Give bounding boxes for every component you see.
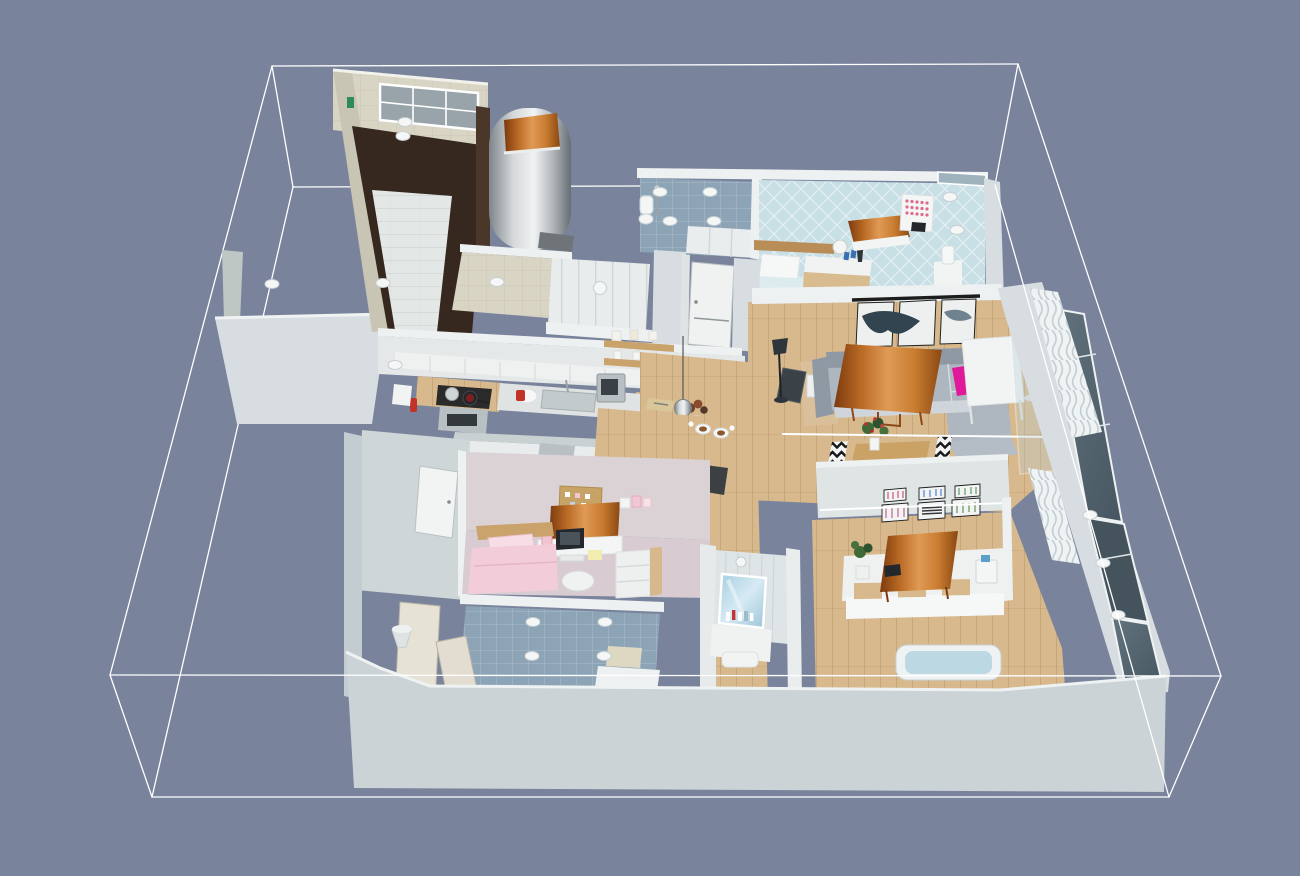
desk-chair <box>562 571 594 591</box>
bathroom-cabinets <box>686 226 756 258</box>
ceiling-lamp <box>396 132 410 141</box>
ceiling-lamp <box>525 652 539 661</box>
ceiling-lamp <box>707 217 721 226</box>
pink-bed <box>468 522 558 594</box>
ceiling-lamp <box>703 188 717 197</box>
sink <box>541 390 596 412</box>
laptop <box>884 564 901 577</box>
tiled-nook-floor <box>452 252 556 318</box>
ceiling-lamp <box>950 226 964 235</box>
floor-plan-3d-viewport[interactable] <box>0 0 1300 876</box>
entry-brown-wall-edge <box>476 106 490 250</box>
bedroom-back-window <box>938 172 986 186</box>
ceiling-lamp <box>490 278 504 287</box>
fire-extinguisher <box>410 398 417 412</box>
exit-sign <box>347 97 354 108</box>
ceiling-lamp <box>598 618 612 627</box>
ceiling-lamp <box>653 188 667 197</box>
triptych-art <box>856 299 976 347</box>
wall-lamp <box>736 557 746 567</box>
drawer-unit <box>616 547 662 598</box>
keyboard <box>560 555 584 561</box>
red-kettle <box>516 390 525 401</box>
ceiling-lamp <box>943 193 957 202</box>
scene-canvas <box>0 0 1300 876</box>
round-metal-cabin <box>489 108 571 250</box>
bath-mat <box>606 646 642 668</box>
ceiling-lamp <box>597 652 611 661</box>
ceiling-lamp <box>398 118 412 127</box>
notepad <box>588 550 602 560</box>
ceiling-lamp <box>376 279 390 288</box>
toilet <box>640 196 653 214</box>
bath-mat-small <box>722 652 758 667</box>
kids-bedroom <box>458 450 710 598</box>
ceiling-lamp <box>526 618 540 627</box>
polka-dot-art <box>900 194 934 232</box>
ceiling-lamp <box>388 361 402 370</box>
pot <box>446 388 459 401</box>
closet-door <box>415 466 458 538</box>
blue-tub <box>896 645 1001 680</box>
round-ceiling-lamp <box>594 282 607 295</box>
ceiling-lamp <box>265 280 279 289</box>
ceiling-lamp <box>663 217 677 226</box>
